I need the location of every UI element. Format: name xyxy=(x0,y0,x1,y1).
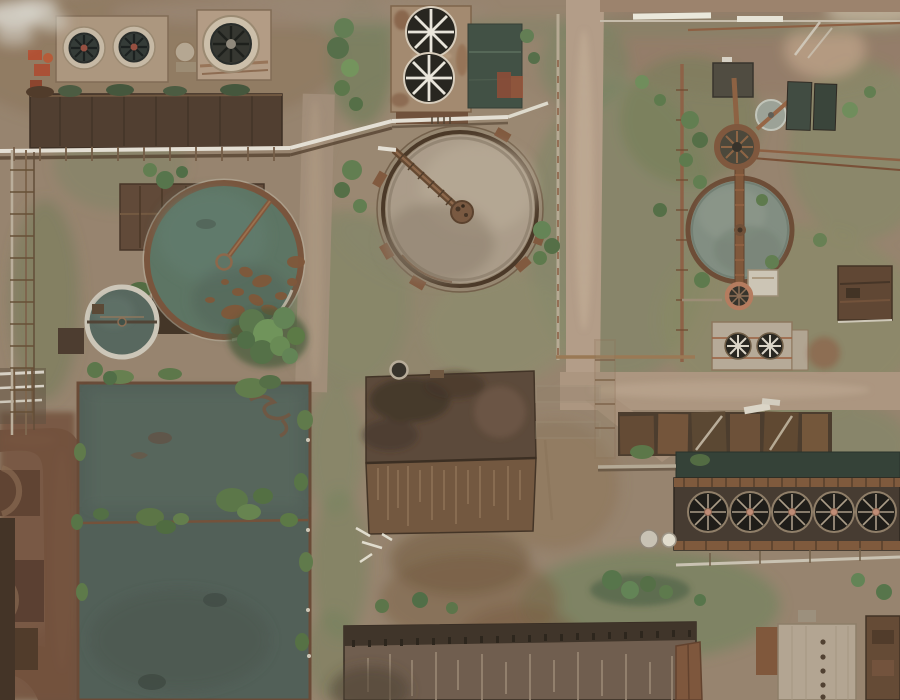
aerial-photo xyxy=(0,0,900,700)
photo-haze-overlay xyxy=(0,0,900,700)
aerial-photo-canvas xyxy=(0,0,900,700)
